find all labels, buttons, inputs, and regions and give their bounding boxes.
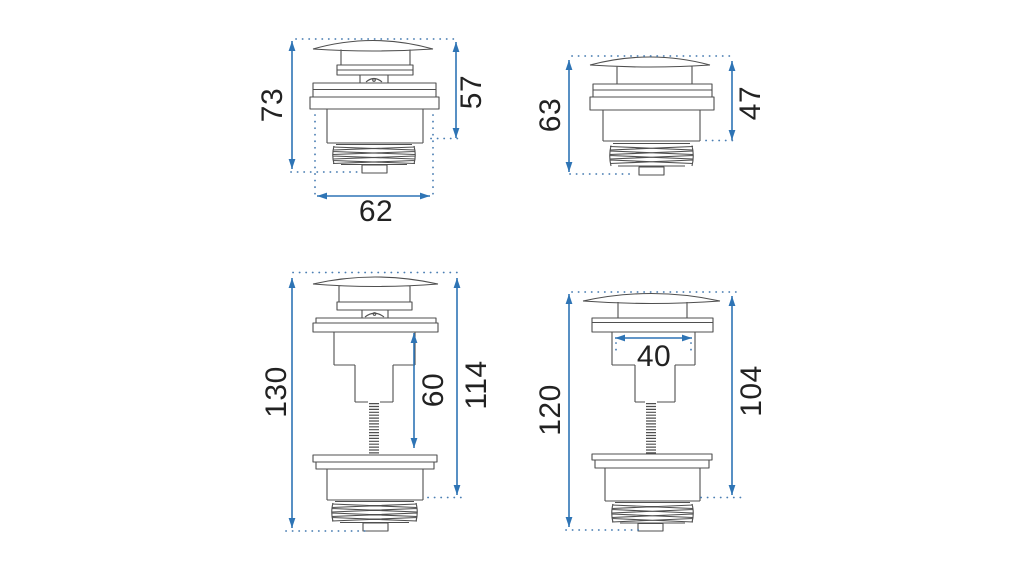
dimension-label-cap-width: 40 bbox=[637, 342, 671, 372]
thread-section bbox=[333, 145, 416, 165]
valve-outline-top-left bbox=[310, 41, 439, 174]
dimension-lines-top-right bbox=[569, 56, 738, 174]
drawing-canvas: 73 57 62 63 47 130 60 114 120 40 104 bbox=[0, 0, 1024, 571]
dimension-label-total-height: 73 bbox=[258, 88, 288, 122]
dimension-label-body-height: 114 bbox=[462, 360, 492, 409]
valve-outline-bottom-right bbox=[583, 294, 720, 532]
figure-bottom-right bbox=[566, 292, 745, 531]
dimension-label-width: 62 bbox=[359, 197, 393, 227]
thread-section bbox=[332, 502, 418, 523]
dimension-label-total-height: 120 bbox=[536, 384, 566, 436]
thread-section bbox=[610, 144, 694, 167]
dimension-label-body-height: 104 bbox=[737, 365, 767, 417]
valve-outline-top-right bbox=[590, 57, 714, 175]
dimension-lines-bottom-right bbox=[566, 292, 745, 530]
figure-top-left bbox=[291, 39, 461, 196]
dimension-label-body-height: 57 bbox=[457, 75, 487, 109]
thread-section bbox=[612, 503, 694, 524]
dimension-label-body-height: 47 bbox=[736, 86, 766, 120]
dimension-label-total-height: 63 bbox=[536, 98, 566, 132]
dimension-label-rod-length: 60 bbox=[419, 373, 449, 407]
figure-top-right bbox=[569, 56, 738, 175]
technical-drawing bbox=[0, 0, 1024, 571]
dimension-label-total-height: 130 bbox=[262, 366, 292, 418]
